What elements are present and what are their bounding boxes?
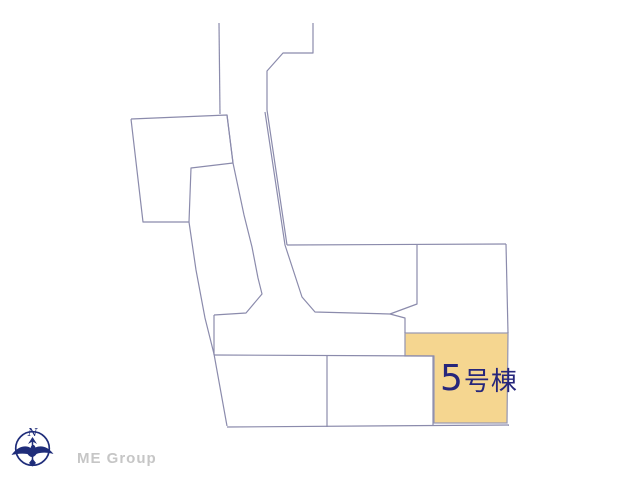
- west-outer-boundary: [189, 222, 227, 426]
- road-left-lower-edge: [214, 115, 262, 315]
- south-block-top-boundary: [214, 355, 434, 356]
- south-block-bottom-boundary: [227, 425, 509, 427]
- east-boundary: [506, 244, 508, 333]
- road-right-upper-edge: [267, 23, 313, 245]
- site-plan-page: N 5号棟 ME Group: [0, 0, 640, 480]
- highlight-parcel: [405, 333, 508, 423]
- site-plan-drawing: N: [0, 0, 640, 480]
- north-block-top-boundary: [287, 244, 506, 245]
- road-corner-wedge: [390, 314, 405, 333]
- road-right-lower-edge: [265, 112, 390, 314]
- compass-north-label: N: [27, 426, 38, 439]
- north-block-divider: [390, 244, 417, 314]
- company-logo-text: ME Group: [77, 450, 157, 467]
- road-left-upper-edge: [219, 23, 220, 114]
- compass-icon: N: [12, 426, 54, 467]
- northwest-parcel-outline: [131, 115, 233, 222]
- parcel-layer: [131, 23, 509, 427]
